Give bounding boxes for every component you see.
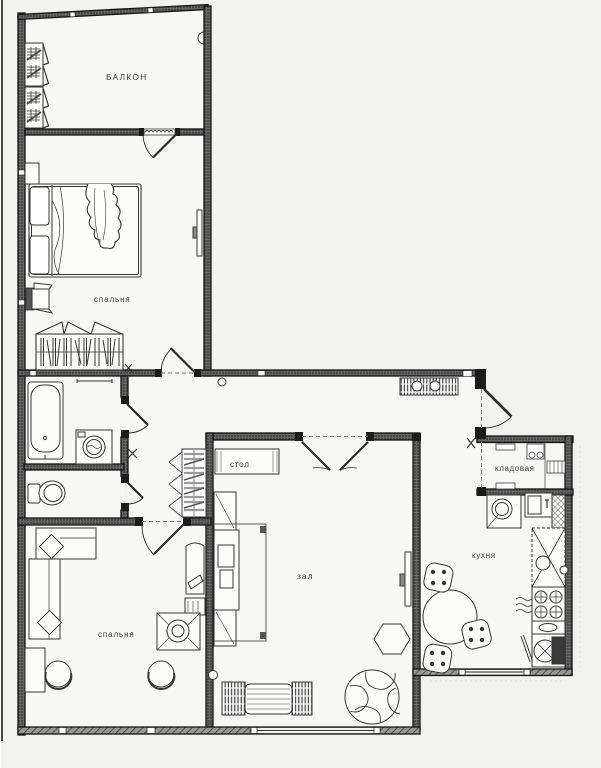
svg-text:БАЛКОН: БАЛКОН	[106, 73, 148, 82]
svg-text:кладовая: кладовая	[495, 464, 535, 473]
svg-text:спальня: спальня	[94, 295, 131, 304]
svg-text:стол: стол	[230, 460, 250, 469]
svg-text:спальня: спальня	[98, 630, 135, 639]
svg-text:кухня: кухня	[472, 551, 496, 560]
svg-text:зал: зал	[297, 571, 314, 581]
